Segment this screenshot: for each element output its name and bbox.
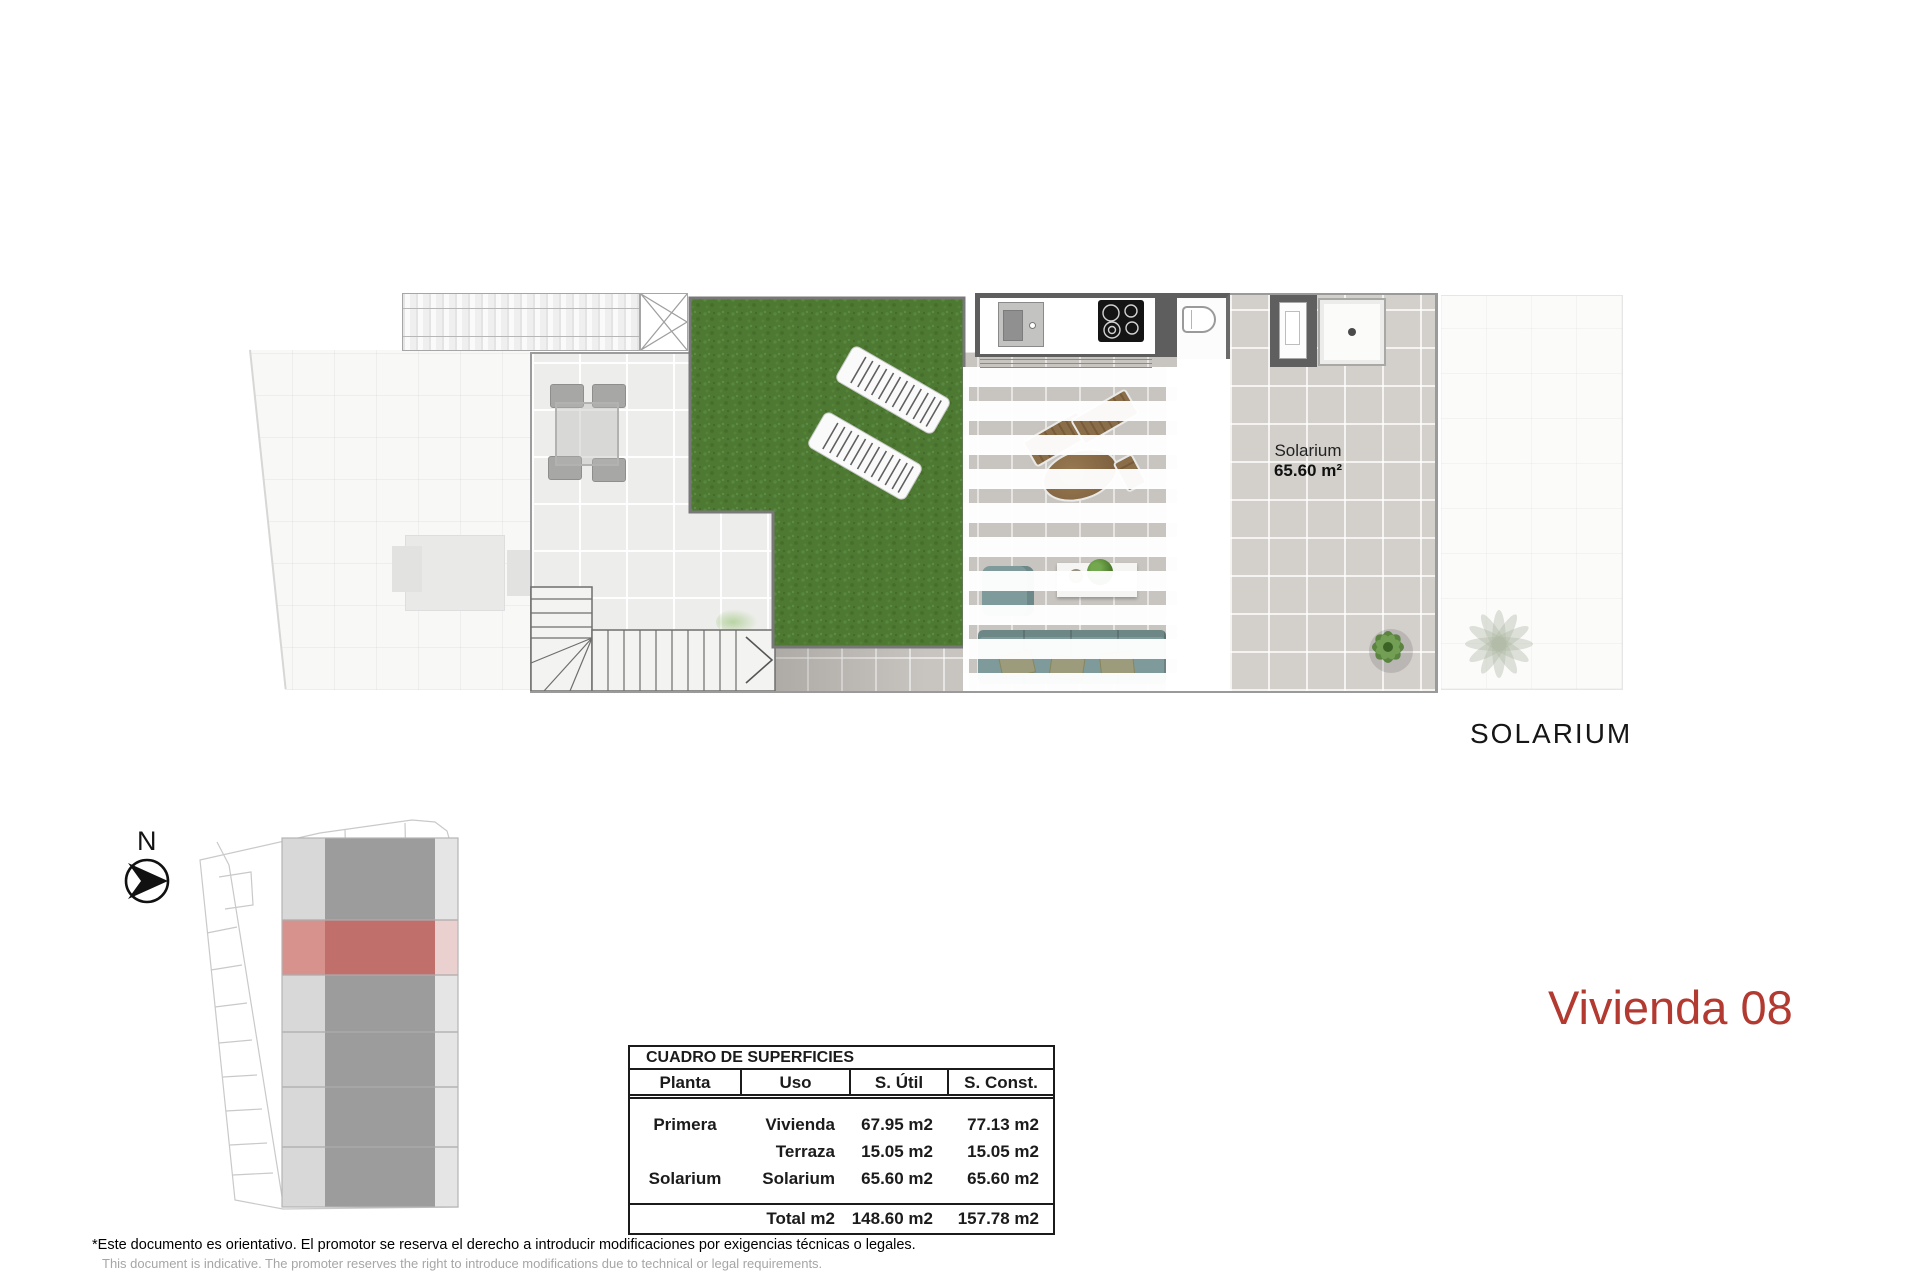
- outdoor-kitchen: [975, 293, 1177, 357]
- table-row: Terraza 15.05 m2 15.05 m2: [630, 1138, 1053, 1165]
- total-label: Total m2: [740, 1209, 849, 1229]
- room-area: 65.60 m²: [1248, 461, 1368, 481]
- neighbor-terrace-left: [250, 350, 530, 690]
- brochure-page: { "unit_title": "Vivienda 08", "floor_pl…: [0, 0, 1920, 1280]
- shower-drain: [1348, 328, 1356, 336]
- neighbor-solarium-right: [1441, 295, 1623, 690]
- surfaces-table: CUADRO DE SUPERFICIES Planta Uso S. Útil…: [628, 1045, 1055, 1235]
- room-name: Solarium: [1248, 441, 1368, 461]
- compass-north-label: N: [137, 826, 157, 857]
- pergola-slats: [963, 367, 1177, 693]
- cooktop: [1098, 300, 1144, 342]
- table-row: Primera Vivienda 67.95 m2 77.13 m2: [630, 1111, 1053, 1138]
- sliding-glass-door: [980, 359, 1152, 368]
- wc-niche: [1177, 293, 1230, 359]
- neighbor-ghost-palm: [1459, 606, 1539, 682]
- toilet: [1182, 306, 1216, 333]
- table-row: Solarium Solarium 65.60 m2 65.60 m2: [630, 1165, 1053, 1192]
- table-body: Primera Vivienda 67.95 m2 77.13 m2 Terra…: [630, 1099, 1053, 1202]
- lawn: [690, 298, 964, 647]
- highlighted-unit-row: [282, 920, 458, 975]
- patio-table: [555, 402, 619, 466]
- kitchen-sink: [998, 302, 1044, 347]
- solarium-area: Solarium 65.60 m²: [1230, 293, 1438, 693]
- north-arrow-icon: [123, 857, 173, 907]
- table-title: CUADRO DE SUPERFICIES: [630, 1047, 1053, 1070]
- table-total-row: Total m2 148.60 m2 157.78 m2: [630, 1205, 1053, 1233]
- roof-corner-lines: [641, 294, 687, 350]
- col-util: S. Útil: [849, 1070, 947, 1096]
- floor-plan: Solarium 65.60 m²: [200, 293, 1625, 694]
- neighbor-ghost-chair: [392, 546, 422, 592]
- col-const: S. Const.: [947, 1070, 1053, 1096]
- disclaimer-spanish: *Este documento es orientativo. El promo…: [92, 1237, 916, 1253]
- unit-title: Vivienda 08: [1548, 980, 1793, 1035]
- outdoor-shower-panel: [1279, 302, 1307, 359]
- plan-caption: SOLARIUM: [1470, 718, 1632, 750]
- total-util: 148.60 m2: [849, 1209, 947, 1229]
- potted-plant: [1352, 611, 1424, 683]
- site-key-plan: [195, 815, 475, 1220]
- sink-basin: [1003, 310, 1023, 341]
- table-header-row: Planta Uso S. Útil S. Const.: [630, 1070, 1053, 1096]
- stair-roof-corner: [640, 293, 688, 351]
- sink-tap: [1029, 322, 1036, 329]
- shower-tray: [1318, 298, 1386, 366]
- total-const: 157.78 m2: [947, 1209, 1053, 1229]
- shower-niche-wall: [1270, 295, 1317, 367]
- solarium-room-label: Solarium 65.60 m²: [1248, 441, 1368, 480]
- grass-garden: [688, 296, 966, 649]
- building-block: [282, 838, 458, 1207]
- disclaimer-english: This document is indicative. The promote…: [102, 1256, 916, 1271]
- footer-disclaimer: *Este documento es orientativo. El promo…: [92, 1237, 916, 1271]
- col-uso: Uso: [740, 1070, 849, 1096]
- plan-outer-wall-bottom: [530, 691, 1438, 693]
- col-planta: Planta: [630, 1070, 740, 1096]
- stair-roof-slats: [402, 293, 640, 351]
